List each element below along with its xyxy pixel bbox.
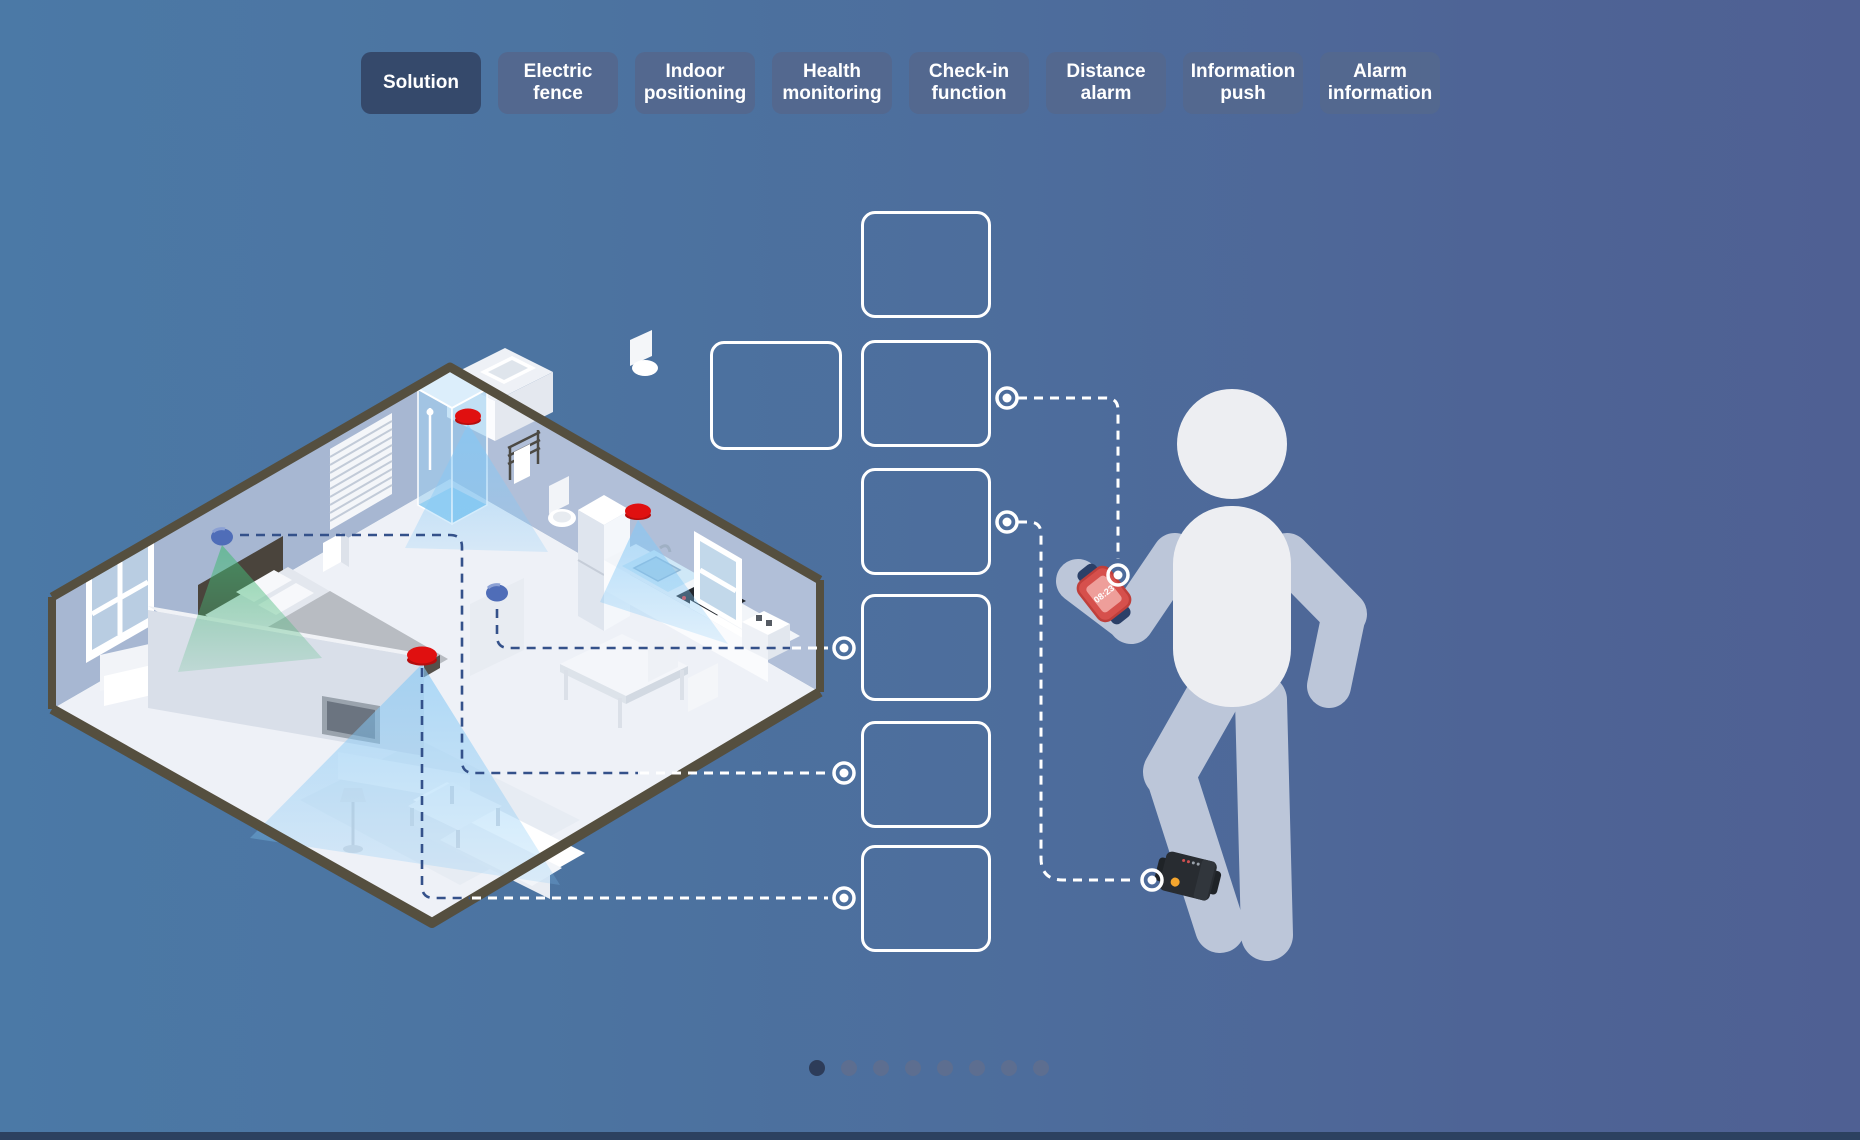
dome-sensor-hallway (486, 585, 508, 602)
tab-electric-fence[interactable]: Electric fence (498, 52, 618, 114)
card-placeholder (861, 845, 991, 952)
connector-dot (997, 512, 1017, 532)
connector-dot (834, 763, 854, 783)
connector-dot (834, 638, 854, 658)
card-placeholder (710, 341, 842, 450)
connector-dot (834, 888, 854, 908)
person-figure: 08:23 (1069, 389, 1344, 935)
radar-sensor-kitchen (625, 504, 651, 521)
pagination-dot-4[interactable] (905, 1060, 921, 1076)
connector-dot (997, 388, 1017, 408)
person-torso (1173, 506, 1291, 707)
bathroom-fixture (630, 330, 658, 376)
tab-indoor-positioning[interactable]: Indoor positioning (635, 52, 755, 114)
tab-bar: SolutionElectric fenceIndoor positioning… (361, 52, 1440, 114)
card-placeholder (861, 594, 991, 701)
bottom-bar (0, 1132, 1860, 1140)
card-placeholder (861, 721, 991, 828)
pagination-dot-7[interactable] (1001, 1060, 1017, 1076)
pagination-dot-8[interactable] (1033, 1060, 1049, 1076)
dome-sensor-bedroom (211, 529, 233, 546)
tab-alarm-information[interactable]: Alarm information (1320, 52, 1440, 114)
card-placeholder (861, 211, 991, 318)
tab-health-monitoring[interactable]: Health monitoring (772, 52, 892, 114)
tab-information-push[interactable]: Information push (1183, 52, 1303, 114)
tab-distance-alarm[interactable]: Distance alarm (1046, 52, 1166, 114)
radar-sensor-living-room (407, 647, 437, 666)
card-placeholder (861, 340, 991, 447)
pagination-dot-2[interactable] (841, 1060, 857, 1076)
card-placeholder (861, 468, 991, 575)
tab-check-in-function[interactable]: Check-in function (909, 52, 1029, 114)
pagination-dot-6[interactable] (969, 1060, 985, 1076)
radar-sensor-bathroom (455, 409, 481, 426)
pagination-dot-3[interactable] (873, 1060, 889, 1076)
carousel-pagination (809, 1060, 1049, 1076)
pagination-dot-5[interactable] (937, 1060, 953, 1076)
pagination-dot-1[interactable] (809, 1060, 825, 1076)
person-head (1177, 389, 1287, 499)
solution-slide: 08:23 (0, 0, 1860, 1140)
smart-home-room (52, 330, 820, 923)
tab-solution[interactable]: Solution (361, 52, 481, 114)
